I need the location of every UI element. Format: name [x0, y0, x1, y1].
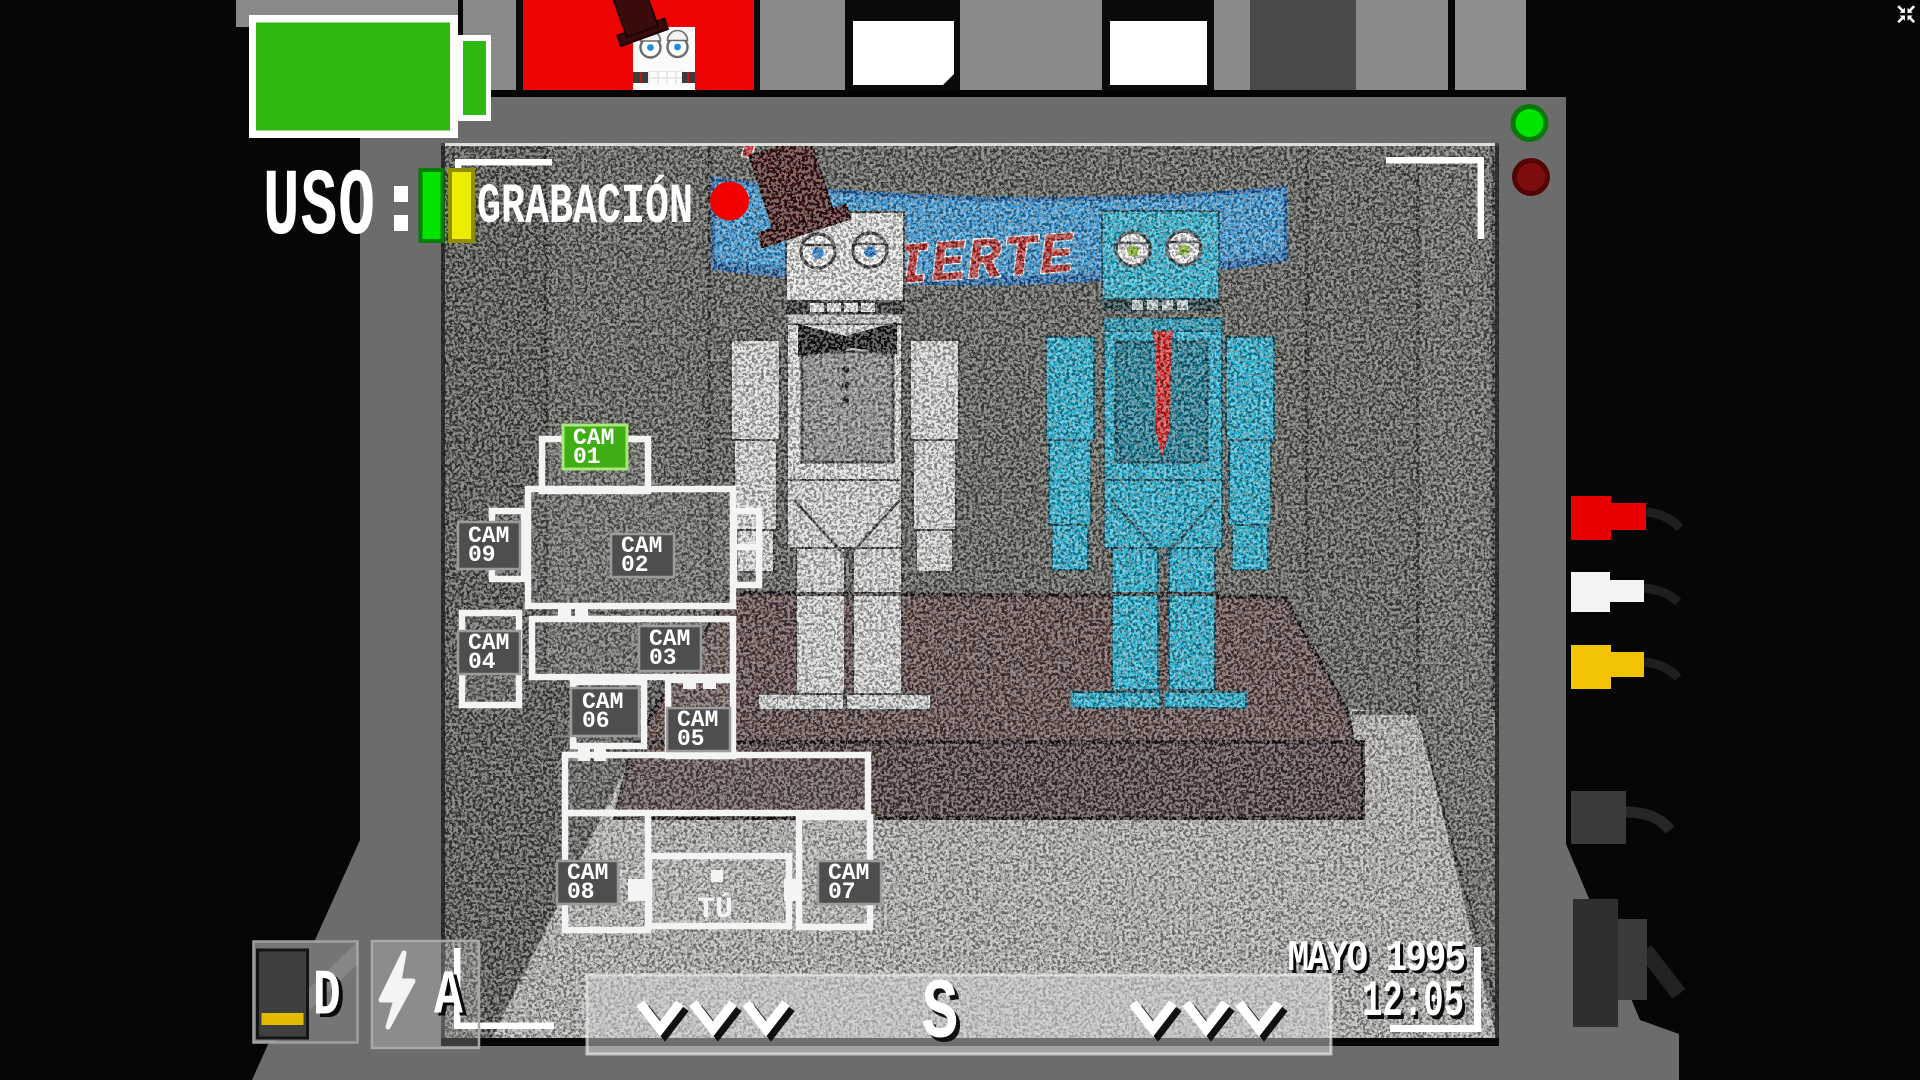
svg-text:07: 07: [828, 879, 856, 905]
svg-text:S: S: [922, 967, 958, 1063]
svg-text:08: 08: [567, 879, 595, 905]
svg-text:06: 06: [582, 708, 610, 734]
svg-text:01: 01: [573, 444, 601, 470]
svg-text:12:05: 12:05: [1362, 974, 1464, 1032]
svg-text:A: A: [434, 961, 463, 1032]
svg-text:D: D: [313, 959, 341, 1033]
svg-text:USO: USO: [263, 155, 376, 262]
svg-text:04: 04: [468, 649, 496, 675]
svg-text:05: 05: [677, 726, 705, 752]
svg-text:03: 03: [649, 645, 677, 671]
svg-text:09: 09: [468, 542, 496, 568]
svg-text:GRABACIÓN: GRABACIÓN: [477, 173, 693, 239]
svg-text:TÚ: TÚ: [697, 892, 733, 927]
svg-text:02: 02: [621, 552, 649, 578]
